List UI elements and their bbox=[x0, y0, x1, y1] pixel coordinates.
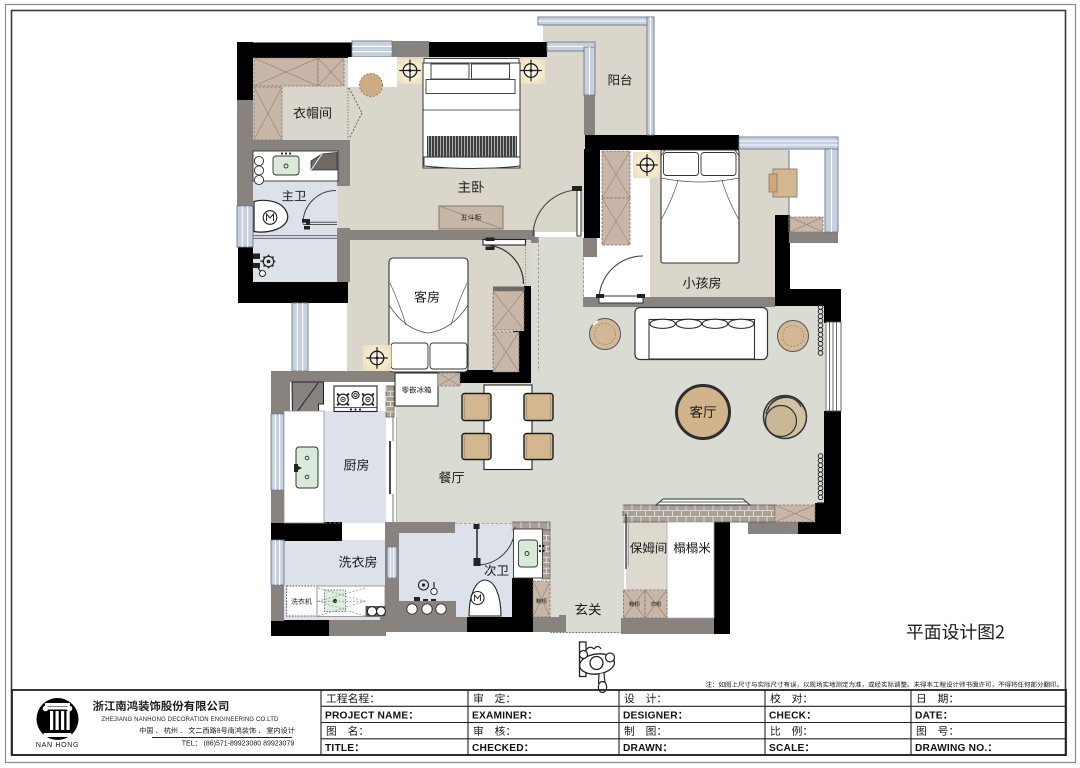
svg-text:TEL： (86)571-89923080 89923: TEL： (86)571-89923080 89923079 bbox=[182, 741, 295, 748]
svg-text:DRAWING NO.：: DRAWING NO.： bbox=[915, 743, 998, 754]
svg-text:DATE：: DATE： bbox=[915, 711, 953, 722]
svg-text:CHECK：: CHECK： bbox=[769, 711, 817, 722]
svg-text:DESIGNER：: DESIGNER： bbox=[623, 711, 688, 722]
svg-text:TITLE：: TITLE： bbox=[325, 743, 365, 754]
svg-text:NAN HONG: NAN HONG bbox=[36, 742, 79, 749]
svg-text:DRAWN：: DRAWN： bbox=[623, 743, 673, 754]
svg-text:PROJECT NAME：: PROJECT NAME： bbox=[325, 711, 419, 722]
svg-text:EXAMINER：: EXAMINER： bbox=[472, 711, 538, 722]
svg-text:ZHEJIANG NANHONG DECORATION: ZHEJIANG NANHONG DECORATION ENGINEERING … bbox=[101, 717, 279, 723]
svg-text:SCALE：: SCALE： bbox=[769, 743, 815, 754]
svg-text:CHECKED：: CHECKED： bbox=[472, 743, 534, 754]
